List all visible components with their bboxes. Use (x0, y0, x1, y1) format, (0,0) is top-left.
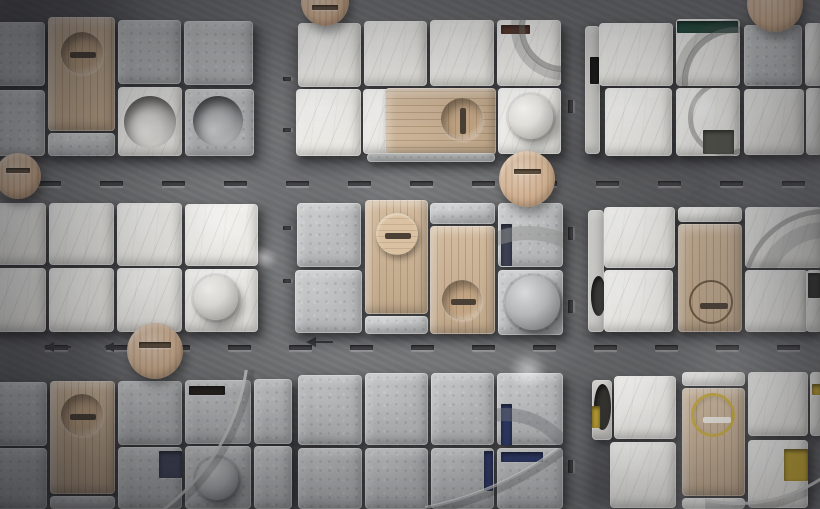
tile-circle-ball-white (509, 95, 553, 139)
big-arc-ring (705, 445, 820, 509)
lane-dash (38, 181, 61, 186)
cube-tile-concrete-dark (367, 153, 495, 162)
cube-tile-concrete (498, 270, 563, 335)
cube-tile-marble (682, 372, 745, 386)
cube-tile-concrete (298, 448, 362, 509)
cube-tile-concrete (297, 203, 361, 267)
cube-tile-concrete (298, 375, 362, 445)
cube-tile-concrete (118, 20, 181, 84)
cube-tile-concrete (295, 270, 362, 333)
cube-tile-marble (49, 203, 114, 265)
tile-circle-ball-white (194, 276, 238, 320)
big-arc-clip (150, 370, 295, 509)
tile-circle-ring-wood (689, 280, 733, 324)
cube-tile-marble (605, 88, 672, 156)
cube-tile-marble-side (588, 210, 604, 332)
cube-tile-marble (296, 89, 361, 156)
tile-circle-ball-gray (506, 276, 560, 330)
lane-dash (472, 345, 495, 350)
cube-tile-marble (0, 203, 46, 265)
tile-slot (703, 130, 734, 154)
cube-tile-wood-v (365, 200, 428, 314)
seat-disc (499, 151, 555, 207)
tile-arc (511, 20, 561, 80)
cube-tile-concrete (185, 89, 254, 156)
tile-circle-crater-white (124, 96, 176, 148)
tile-circle-recess-wood (61, 32, 103, 74)
lane-dash (100, 181, 123, 186)
tile-circle-disc-wood (376, 213, 418, 255)
cube-tile-marble (610, 442, 676, 508)
cube-tile-marble (745, 270, 808, 332)
tile-hole (591, 276, 604, 316)
lane-tick (283, 128, 291, 132)
lane-dash (594, 345, 617, 350)
lane-dash (410, 181, 433, 186)
cube-tile-marble (185, 269, 258, 332)
lane-arrow (44, 342, 72, 352)
lane-dash (472, 181, 495, 186)
circle-minus-mark (70, 52, 96, 58)
cube-tile-marble (748, 372, 808, 436)
lane-dash (411, 345, 434, 350)
seat-slot (6, 168, 30, 173)
cube-tile-marble-side (592, 380, 612, 440)
cube-tile-concrete (184, 21, 253, 85)
cube-tile-marble (117, 203, 182, 266)
cube-tile-marble (678, 207, 742, 222)
arrow-head-icon (44, 342, 54, 352)
cube-tile-wood-v (50, 381, 115, 494)
lane-dash (658, 181, 681, 186)
seat-slot (312, 5, 338, 10)
cube-tile-concrete (48, 133, 115, 156)
cube-tile-marble (604, 270, 673, 332)
cube-tile-marble (49, 268, 114, 332)
circle-minus-mark (70, 414, 96, 420)
cube-tile-marble (185, 204, 258, 266)
lane-dash (655, 345, 678, 350)
lane-dash (350, 345, 373, 350)
circle-minus-mark (460, 108, 466, 134)
cube-tile-marble (806, 88, 820, 155)
cube-tile-marble (614, 376, 676, 439)
cube-tile-marble (498, 88, 561, 154)
tile-circle-ring-gold (691, 393, 735, 437)
cube-tile-concrete (365, 373, 428, 445)
tile-arc (497, 408, 563, 445)
cube-tile-marble (430, 20, 494, 86)
cube-tile-marble (676, 19, 740, 86)
circle-minus-mark (385, 233, 411, 239)
seat-slot (514, 169, 541, 174)
tile-circle-crater-gray (193, 96, 243, 146)
cube-tile-marble-side (585, 26, 600, 154)
cube-tile-marble (497, 20, 561, 86)
lane-dash (720, 181, 743, 186)
circle-minus-mark (700, 303, 728, 309)
lane-dash (348, 181, 371, 186)
seat-disc (127, 323, 183, 379)
circle-minus-mark (703, 417, 731, 423)
cube-tile-concrete (430, 203, 495, 224)
cube-tile-concrete (744, 25, 802, 86)
cube-tile-wood-h (385, 88, 496, 155)
big-arc-clip (425, 448, 565, 509)
big-arc-clip (705, 445, 820, 509)
tile-slot (590, 57, 599, 84)
lane-tick (283, 77, 291, 81)
big-arc-ring (150, 370, 257, 509)
cube-tile-concrete (50, 496, 115, 509)
cube-tile-marble (604, 207, 675, 268)
render-canvas (0, 0, 820, 509)
cube-tile-marble (744, 89, 804, 155)
lane-dash (596, 181, 619, 186)
cube-tile-marble (599, 23, 673, 86)
cube-tile-marble (745, 207, 820, 268)
cube-tile-concrete (0, 90, 45, 156)
tile-circle-recess-wood (441, 98, 483, 140)
arrow-head-icon (104, 342, 114, 352)
cube-tile-concrete (0, 22, 45, 86)
cube-tile-marble (806, 270, 820, 332)
cube-tile-concrete (365, 448, 428, 509)
lane-dash (224, 181, 247, 186)
seat-disc (0, 153, 41, 199)
big-arc-ring (425, 448, 565, 509)
tile-slot (808, 273, 820, 298)
lane-dash (286, 181, 309, 186)
tile-slot (812, 384, 820, 395)
cube-tile-marble (810, 372, 820, 436)
tile-circle-recess-wood (61, 394, 103, 436)
lane-dash (716, 345, 739, 350)
cube-tile-wood-v (430, 226, 495, 334)
circle-minus-mark (451, 299, 476, 305)
seat-slot (139, 342, 171, 348)
cube-tile-marble (118, 87, 182, 156)
cube-tile-concrete (431, 373, 494, 445)
lane-dash (533, 345, 556, 350)
cube-tile-marble (805, 23, 820, 86)
tile-arc (498, 226, 563, 267)
cube-tile-concrete (0, 382, 47, 446)
cube-tile-concrete (498, 203, 563, 267)
cube-tile-concrete (365, 316, 428, 334)
lane-dash (228, 345, 251, 350)
cube-tile-marble (364, 21, 427, 86)
cube-tile-concrete (0, 448, 47, 509)
cube-tile-marble (0, 268, 46, 332)
lane-dash (782, 181, 805, 186)
lane-dash (777, 345, 800, 350)
cube-tile-wood-v (48, 17, 115, 131)
cube-tile-wood-v (678, 224, 742, 332)
tile-slot (592, 406, 600, 428)
lane-dash (162, 181, 185, 186)
tile-circle-recess-wood (442, 280, 482, 320)
cube-tile-marble (298, 23, 361, 87)
arrow-line (54, 346, 71, 348)
